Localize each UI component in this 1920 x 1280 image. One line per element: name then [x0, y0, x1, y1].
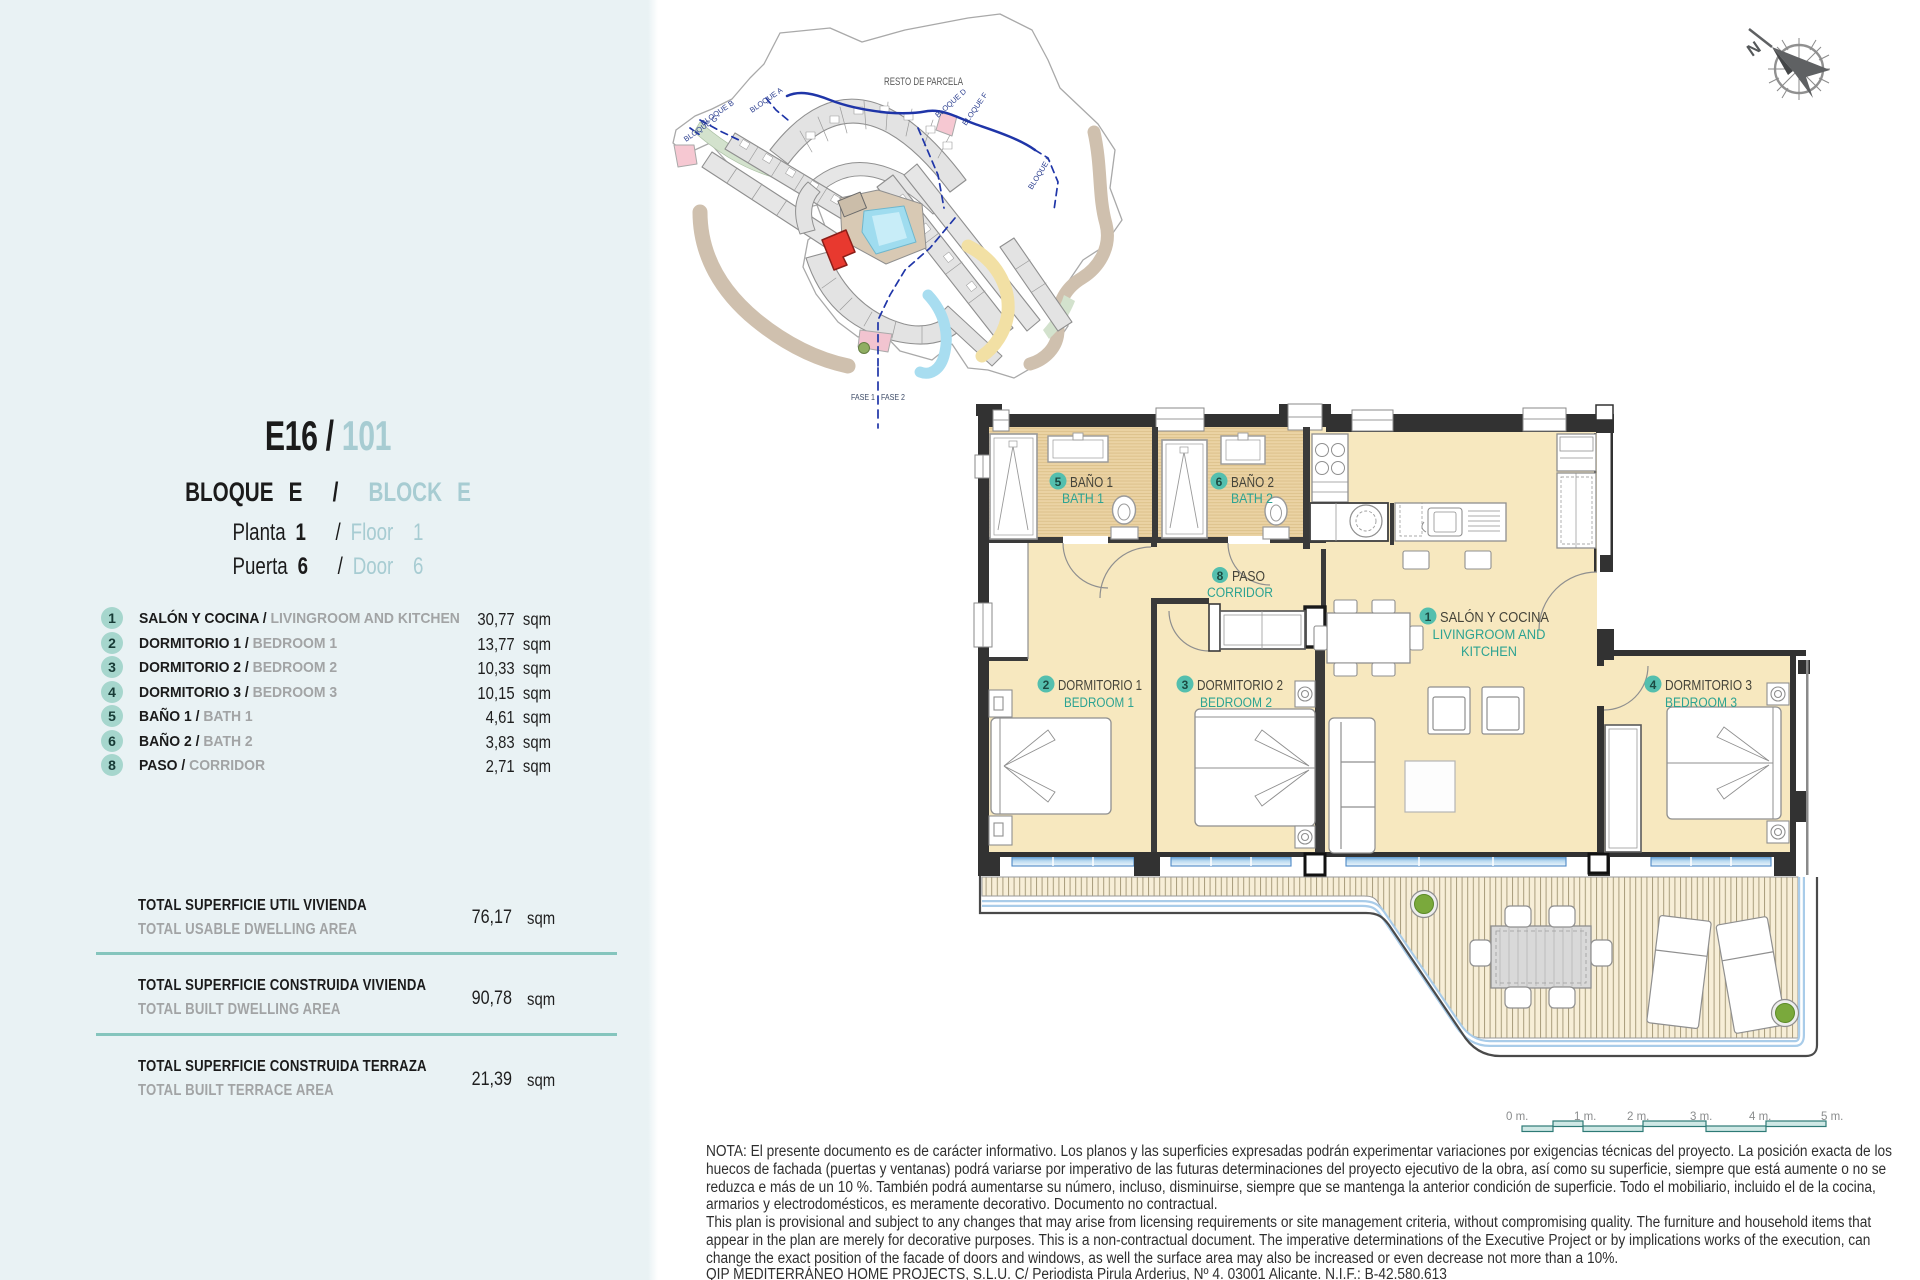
svg-text:0 m.: 0 m. — [1506, 1111, 1528, 1123]
svg-text:N: N — [1743, 38, 1764, 61]
svg-text:BAÑO 1: BAÑO 1 — [1070, 474, 1113, 491]
svg-text:BEDROOM 1: BEDROOM 1 — [1064, 695, 1134, 710]
svg-text:DORMITORIO 2: DORMITORIO 2 — [1197, 678, 1283, 694]
svg-text:BEDROOM 3: BEDROOM 3 — [1665, 695, 1737, 710]
svg-text:5: 5 — [1055, 475, 1062, 489]
svg-text:SALÓN Y COCINA: SALÓN Y COCINA — [1440, 609, 1549, 626]
svg-text:RESTO DE PARCELA: RESTO DE PARCELA — [884, 76, 963, 88]
svg-text:DORMITORIO 3: DORMITORIO 3 — [1665, 678, 1752, 694]
svg-text:4: 4 — [1650, 678, 1657, 692]
svg-text:8: 8 — [1217, 569, 1224, 583]
svg-text:FASE 1: FASE 1 — [851, 392, 875, 402]
svg-text:BAÑO 2: BAÑO 2 — [1231, 474, 1274, 491]
svg-text:1: 1 — [1425, 610, 1432, 624]
svg-text:6: 6 — [1216, 475, 1223, 489]
svg-text:3: 3 — [1182, 678, 1189, 692]
svg-text:BATH 1: BATH 1 — [1062, 491, 1104, 506]
svg-text:FASE 2: FASE 2 — [881, 392, 905, 402]
svg-text:PASO: PASO — [1232, 569, 1265, 585]
svg-text:CORRIDOR: CORRIDOR — [1207, 585, 1273, 600]
svg-text:KITCHEN: KITCHEN — [1461, 644, 1517, 659]
svg-text:2: 2 — [1043, 678, 1050, 692]
svg-text:BEDROOM 2: BEDROOM 2 — [1200, 695, 1272, 710]
svg-text:DORMITORIO 1: DORMITORIO 1 — [1058, 678, 1142, 694]
svg-text:BATH 2: BATH 2 — [1231, 491, 1273, 506]
svg-text:LIVINGROOM AND: LIVINGROOM AND — [1433, 627, 1546, 642]
